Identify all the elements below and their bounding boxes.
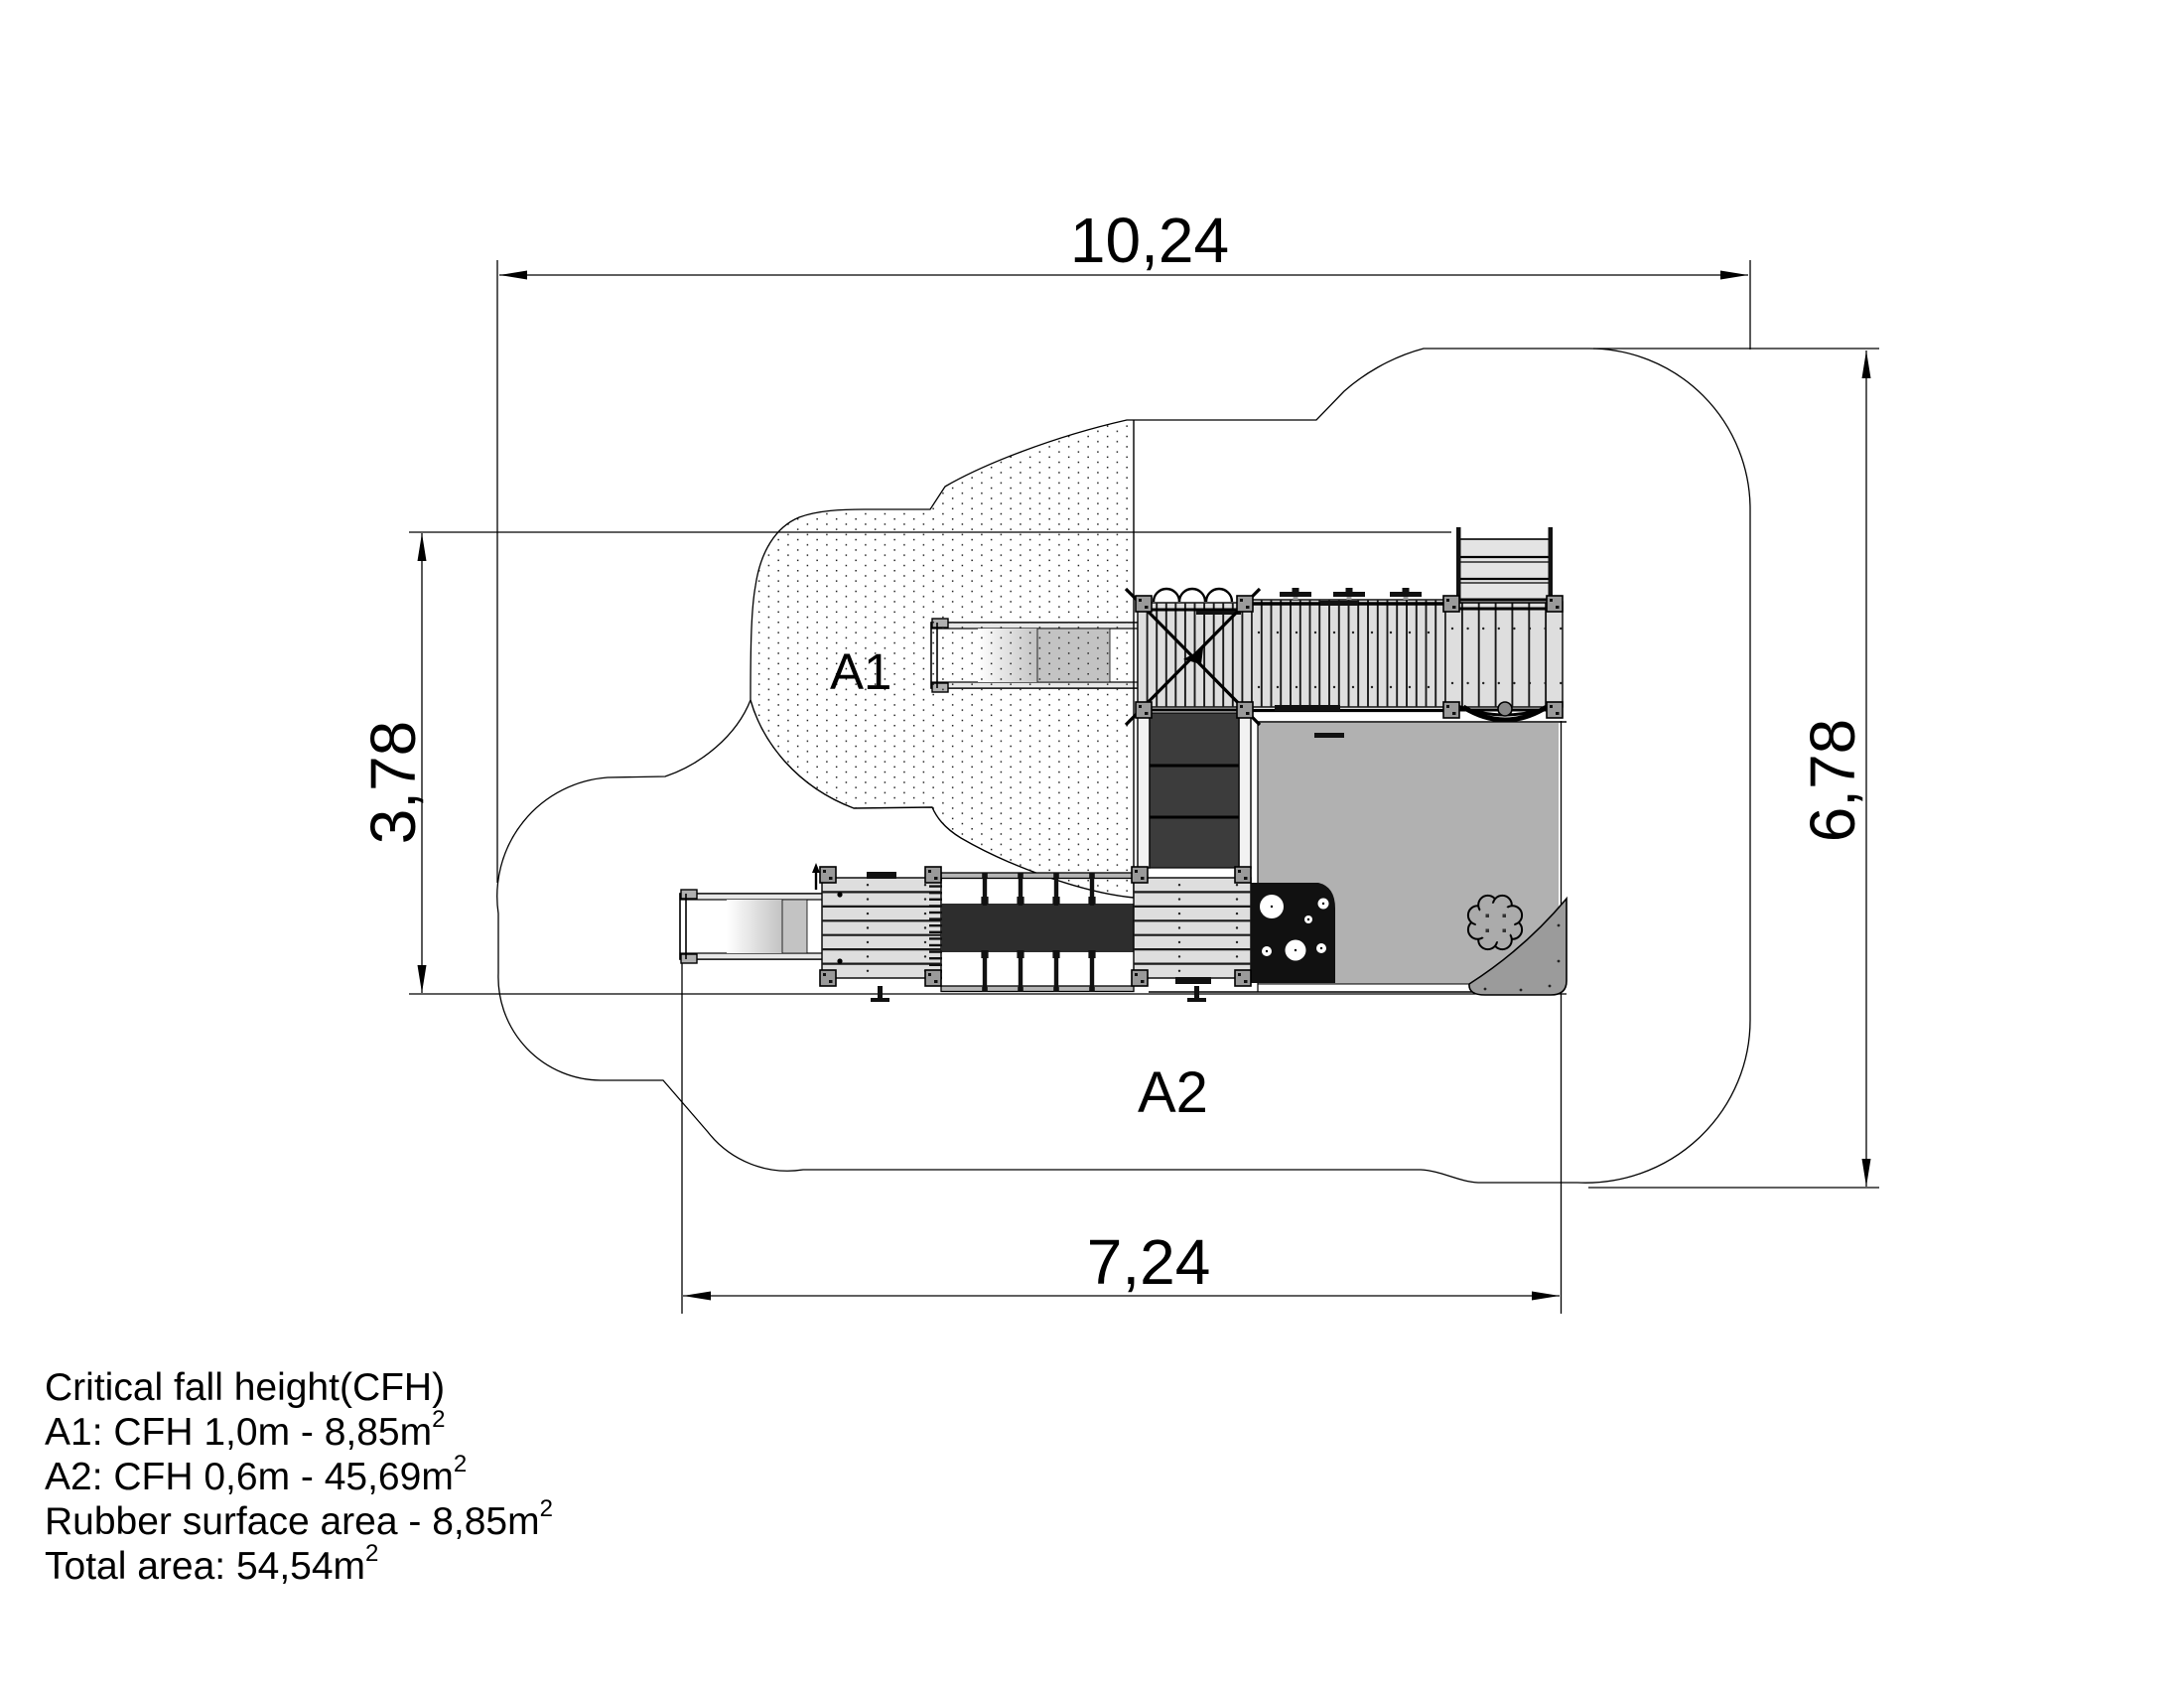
svg-text:A1: CFH 1,0m - 8,85m2: A1: CFH 1,0m - 8,85m2 <box>45 1406 445 1454</box>
svg-text:6,78: 6,78 <box>1797 719 1868 843</box>
svg-text:Critical fall height(CFH): Critical fall height(CFH) <box>45 1366 445 1409</box>
svg-text:A2: CFH 0,6m - 45,69m2: A2: CFH 0,6m - 45,69m2 <box>45 1451 467 1498</box>
svg-text:A2: A2 <box>1138 1060 1208 1125</box>
svg-text:7,24: 7,24 <box>1087 1226 1211 1298</box>
svg-text:A1: A1 <box>830 643 891 700</box>
svg-text:10,24: 10,24 <box>1070 205 1229 276</box>
svg-text:Rubber surface area - 8,85m2: Rubber surface area - 8,85m2 <box>45 1495 553 1543</box>
svg-text:Total area: 54,54m2: Total area: 54,54m2 <box>45 1540 378 1588</box>
svg-text:3,78: 3,78 <box>357 721 429 845</box>
